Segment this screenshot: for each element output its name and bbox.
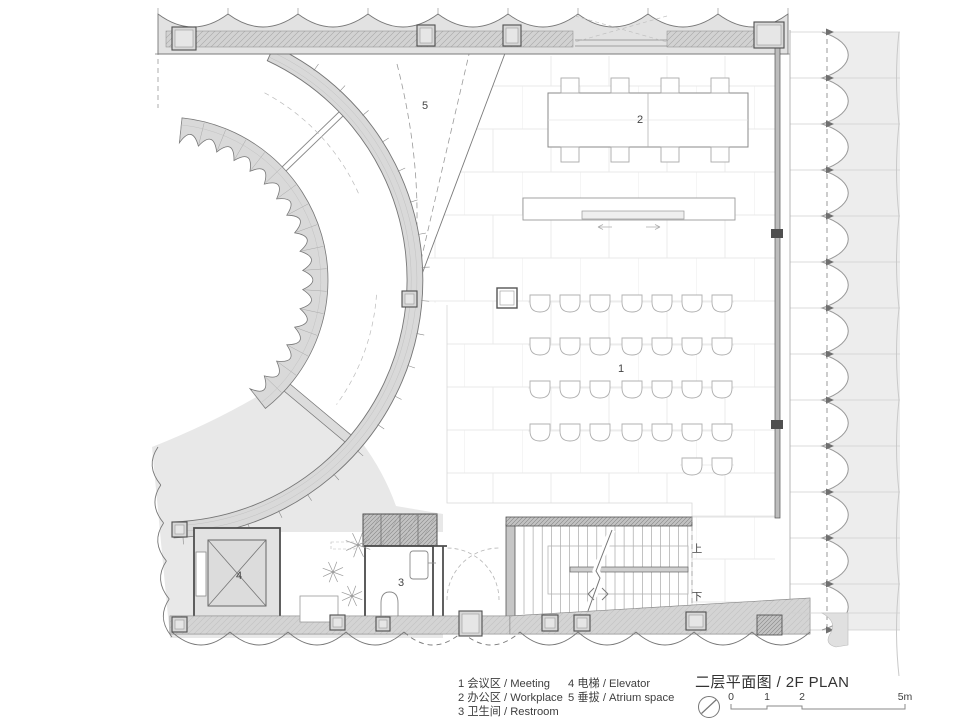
structural-column — [459, 611, 482, 636]
structural-column — [376, 617, 390, 631]
desk-chair — [711, 147, 729, 162]
scale-bar: 0 1 2 5m — [728, 691, 912, 709]
desk-chair — [661, 78, 679, 93]
structural-column — [330, 615, 345, 630]
desk-chair — [661, 147, 679, 162]
chair — [622, 381, 642, 398]
chair — [530, 381, 550, 398]
legend-item-atrium: 5 垂拔 / Atrium space — [568, 690, 674, 704]
legend-item-elevator: 4 电梯 / Elevator — [568, 677, 650, 690]
desk-chair — [611, 147, 629, 162]
scale-tick-1: 1 — [764, 691, 770, 703]
chair — [622, 295, 642, 312]
desk-chair — [711, 78, 729, 93]
structural-column — [686, 612, 706, 630]
floor-plan-page: 5 2 1 4 3 上 下 1 会议区 / Meeting 2 办公区 / Wo… — [0, 0, 960, 727]
chair — [652, 381, 672, 398]
label-meeting: 1 — [618, 363, 624, 375]
chair — [652, 295, 672, 312]
chair — [712, 338, 732, 355]
desk-chair — [611, 78, 629, 93]
structural-column — [497, 288, 517, 308]
label-stair-up: 上 — [692, 543, 703, 555]
title-block: 二层平面图 / 2F PLAN — [695, 674, 849, 691]
chair — [560, 381, 580, 398]
label-restroom: 3 — [398, 577, 404, 589]
terrace-strip — [790, 29, 900, 677]
scale-tick-5m: 5m — [898, 691, 913, 703]
chair — [530, 338, 550, 355]
atrium-inner-scalloped-wall — [179, 118, 328, 409]
chair — [652, 338, 672, 355]
chair — [682, 458, 702, 475]
chair — [622, 424, 642, 441]
mullion-marker — [771, 420, 783, 429]
chair — [560, 338, 580, 355]
north-arrow — [699, 697, 720, 718]
structural-column — [402, 291, 417, 307]
structural-column — [542, 615, 558, 631]
stair-handrail — [570, 567, 688, 572]
chair — [712, 295, 732, 312]
floor-plan-drawing: 5 2 1 4 3 上 下 1 会议区 / Meeting 2 办公区 / Wo… — [0, 0, 960, 727]
chair — [590, 381, 610, 398]
label-workplace: 2 — [637, 114, 643, 126]
scale-tick-2: 2 — [799, 691, 805, 703]
chair — [712, 424, 732, 441]
structural-column — [172, 27, 196, 50]
sink-fixture — [410, 551, 428, 579]
structural-column — [172, 617, 187, 632]
chair — [652, 424, 672, 441]
chair — [590, 338, 610, 355]
label-elevator: 4 — [236, 570, 242, 582]
chair — [712, 381, 732, 398]
door-swing — [447, 548, 499, 600]
chair — [682, 295, 702, 312]
page-title: 二层平面图 / 2F PLAN — [695, 674, 849, 691]
restroom — [363, 514, 437, 622]
chair — [560, 295, 580, 312]
structural-column — [574, 615, 590, 631]
legend: 1 会议区 / Meeting 2 办公区 / Workplace 3 卫生间 … — [458, 677, 674, 718]
chair — [530, 295, 550, 312]
structural-column — [417, 25, 435, 46]
chair — [682, 338, 702, 355]
structural-column — [172, 522, 187, 537]
desk-chair — [561, 147, 579, 162]
label-stair-down: 下 — [692, 591, 703, 603]
structural-column — [754, 22, 784, 48]
chair — [682, 381, 702, 398]
chair — [622, 338, 642, 355]
legend-item-workplace: 2 办公区 / Workplace — [458, 691, 563, 704]
chair — [560, 424, 580, 441]
scale-tick-0: 0 — [728, 691, 734, 703]
chair — [590, 295, 610, 312]
mullion-marker — [771, 229, 783, 238]
label-atrium: 5 — [422, 100, 428, 112]
chair — [712, 458, 732, 475]
chair — [682, 424, 702, 441]
chair — [530, 424, 550, 441]
structural-column — [503, 25, 521, 46]
office-desk — [548, 93, 748, 147]
legend-item-restroom: 3 卫生间 / Restroom — [458, 704, 559, 718]
chair — [590, 424, 610, 441]
door-swing — [447, 548, 499, 600]
legend-item-meeting: 1 会议区 / Meeting — [458, 677, 550, 690]
desk-chair — [561, 78, 579, 93]
